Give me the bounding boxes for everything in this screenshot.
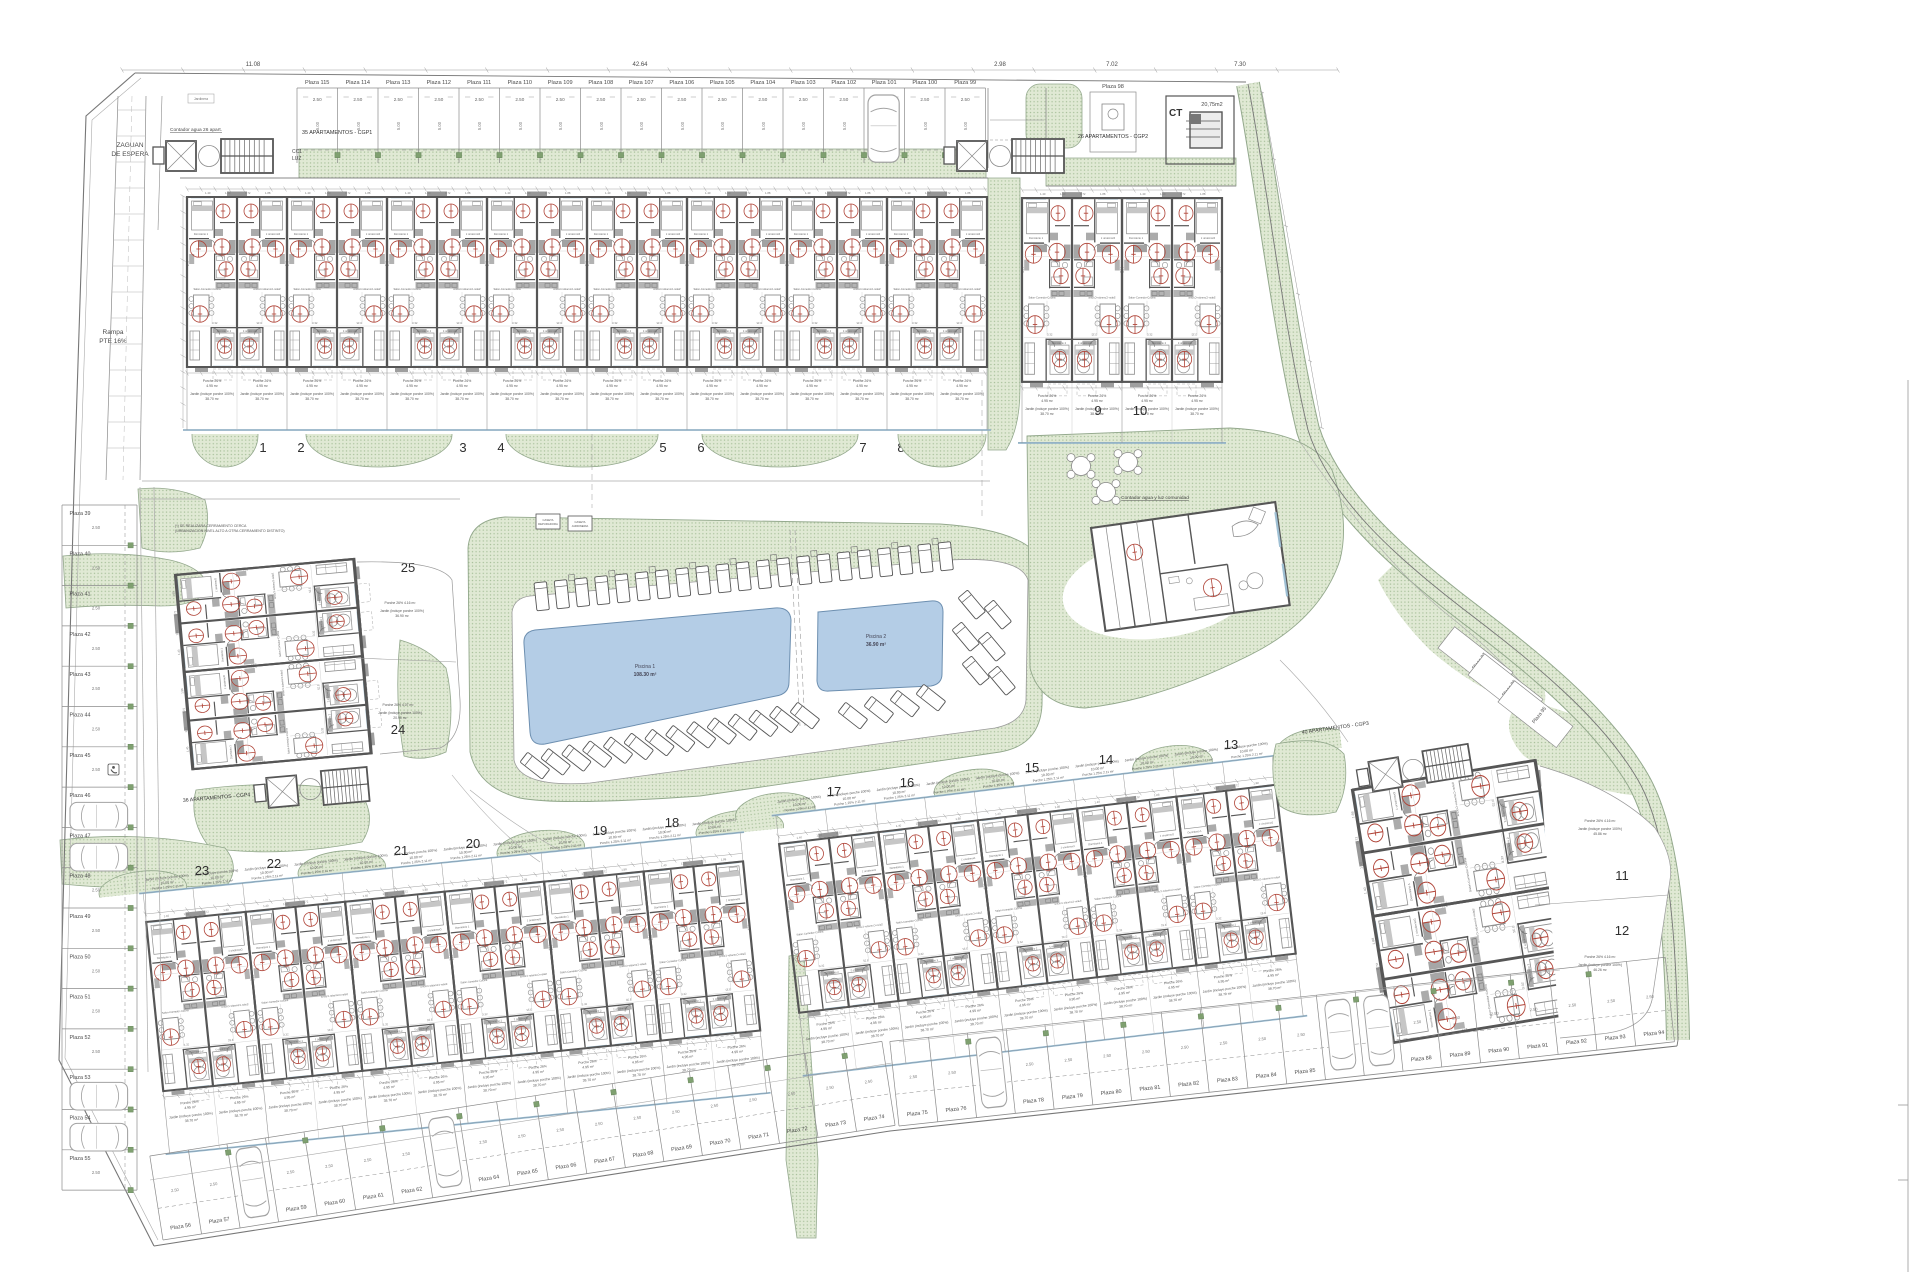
svg-text:2.50: 2.50 xyxy=(596,97,605,102)
svg-text:2.50: 2.50 xyxy=(948,1069,957,1075)
svg-text:Jardin (incluye porche 100%): Jardin (incluye porche 100%) xyxy=(390,392,434,396)
svg-text:1: 1 xyxy=(259,440,266,455)
svg-text:2.50: 2.50 xyxy=(475,97,484,102)
svg-text:2.50: 2.50 xyxy=(718,97,727,102)
svg-text:5.00: 5.00 xyxy=(518,121,523,130)
svg-text:24: 24 xyxy=(391,722,405,737)
svg-text:2.50: 2.50 xyxy=(1646,994,1655,1000)
svg-text:Jardin (incluye porche 100%): Jardin (incluye porche 100%) xyxy=(1578,827,1622,831)
svg-text:Porche 26% 4.16 m²: Porche 26% 4.16 m² xyxy=(385,601,417,605)
svg-text:Jardin (incluye porche 100%): Jardin (incluye porche 100%) xyxy=(378,711,422,715)
svg-text:4.95 m²: 4.95 m² xyxy=(506,384,518,388)
svg-text:2.50: 2.50 xyxy=(1491,1011,1500,1017)
svg-text:Porche 26%: Porche 26% xyxy=(353,379,371,383)
svg-text:2.50: 2.50 xyxy=(1181,1044,1190,1050)
svg-text:(*) SE REALIZARA CERRAMIENTO C: (*) SE REALIZARA CERRAMIENTO CERCA xyxy=(175,524,247,528)
svg-text:5.00: 5.00 xyxy=(842,121,847,130)
svg-text:2.50: 2.50 xyxy=(839,97,848,102)
svg-text:4.95 m²: 4.95 m² xyxy=(806,384,818,388)
svg-text:Contador agua 26 apart.: Contador agua 26 apart. xyxy=(170,127,222,133)
svg-text:38.70 m²: 38.70 m² xyxy=(1190,412,1204,416)
svg-text:5.00: 5.00 xyxy=(680,121,685,130)
svg-text:38.70 m²: 38.70 m² xyxy=(805,397,819,401)
svg-text:16: 16 xyxy=(900,775,914,790)
svg-text:36.90 m²: 36.90 m² xyxy=(395,614,409,618)
svg-text:4.95 m²: 4.95 m² xyxy=(1191,399,1203,403)
svg-text:Jardin (incluye porche 100%): Jardin (incluye porche 100%) xyxy=(440,392,484,396)
svg-text:38.70 m²: 38.70 m² xyxy=(905,397,919,401)
svg-text:38.70 m²: 38.70 m² xyxy=(355,397,369,401)
svg-text:Plaza 107: Plaza 107 xyxy=(629,80,654,86)
svg-text:38.70 m²: 38.70 m² xyxy=(705,397,719,401)
svg-text:Porche 26%: Porche 26% xyxy=(403,379,421,383)
svg-text:5.00: 5.00 xyxy=(396,121,401,130)
svg-text:Jardin (incluye porche 100%): Jardin (incluye porche 100%) xyxy=(240,392,284,396)
svg-text:Plaza 99: Plaza 99 xyxy=(954,80,976,86)
svg-text:2.50: 2.50 xyxy=(92,968,101,973)
svg-text:7.02: 7.02 xyxy=(1106,62,1118,68)
svg-text:2.50: 2.50 xyxy=(92,1049,101,1054)
svg-text:4: 4 xyxy=(497,440,504,455)
svg-text:5.00: 5.00 xyxy=(477,121,482,130)
svg-text:38.70 m²: 38.70 m² xyxy=(405,397,419,401)
svg-text:Jardin (incluye porche 100%): Jardin (incluye porche 100%) xyxy=(690,392,734,396)
svg-text:7.30: 7.30 xyxy=(1234,62,1246,68)
svg-text:2.50: 2.50 xyxy=(920,97,929,102)
svg-text:2.50: 2.50 xyxy=(1103,1053,1112,1059)
svg-text:2.50: 2.50 xyxy=(1219,1040,1228,1046)
svg-text:19: 19 xyxy=(593,823,607,838)
svg-text:20,75m2: 20,75m2 xyxy=(1201,102,1222,108)
svg-text:38.70 m²: 38.70 m² xyxy=(655,397,669,401)
svg-text:2.50: 2.50 xyxy=(637,97,646,102)
svg-text:Porche 26% 4.07 m²: Porche 26% 4.07 m² xyxy=(383,703,415,707)
svg-text:2.50: 2.50 xyxy=(1568,1002,1577,1008)
svg-text:2.50: 2.50 xyxy=(313,97,322,102)
svg-text:Piscina 1: Piscina 1 xyxy=(635,664,656,670)
svg-text:Porche 26% 4.16 m²: Porche 26% 4.16 m² xyxy=(1585,955,1617,959)
svg-text:4.95 m²: 4.95 m² xyxy=(906,384,918,388)
svg-text:JARDINERIA: JARDINERIA xyxy=(572,524,589,528)
svg-text:4.95 m²: 4.95 m² xyxy=(306,384,318,388)
svg-text:Jardin (incluye porche 100%): Jardin (incluye porche 100%) xyxy=(1175,407,1219,411)
svg-text:Plaza 54: Plaza 54 xyxy=(70,1116,91,1122)
svg-text:38.70 m²: 38.70 m² xyxy=(855,397,869,401)
svg-text:4.95 m²: 4.95 m² xyxy=(406,384,418,388)
svg-text:Plaza 39: Plaza 39 xyxy=(70,511,91,517)
svg-text:26 APARTAMENTOS - CGP2: 26 APARTAMENTOS - CGP2 xyxy=(1078,134,1148,140)
svg-text:20.90 m²: 20.90 m² xyxy=(393,716,407,720)
svg-text:Plaza 41: Plaza 41 xyxy=(70,592,91,598)
svg-text:2.50: 2.50 xyxy=(92,767,101,772)
svg-text:Jardin (incluye porche 100%): Jardin (incluye porche 100%) xyxy=(890,392,934,396)
svg-text:7: 7 xyxy=(859,440,866,455)
svg-text:38.70 m²: 38.70 m² xyxy=(255,397,269,401)
svg-text:Plaza 44: Plaza 44 xyxy=(70,713,91,719)
svg-text:2.50: 2.50 xyxy=(394,97,403,102)
svg-text:Porche 26%: Porche 26% xyxy=(453,379,471,383)
svg-text:2.50: 2.50 xyxy=(1025,1061,1034,1067)
svg-text:5.00: 5.00 xyxy=(761,121,766,130)
svg-text:Porche 26%: Porche 26% xyxy=(253,379,271,383)
svg-text:Plaza 55: Plaza 55 xyxy=(70,1156,91,1162)
svg-text:2.50: 2.50 xyxy=(1529,1006,1538,1012)
svg-text:15: 15 xyxy=(1025,760,1039,775)
svg-text:2.98: 2.98 xyxy=(994,62,1006,68)
svg-text:Plaza 103: Plaza 103 xyxy=(791,80,816,86)
svg-text:5.00: 5.00 xyxy=(315,121,320,130)
svg-text:4.95 m²: 4.95 m² xyxy=(756,384,768,388)
svg-text:Plaza 105: Plaza 105 xyxy=(710,80,735,86)
svg-text:5.00: 5.00 xyxy=(437,121,442,130)
svg-text:2.50: 2.50 xyxy=(92,727,101,732)
svg-text:Plaza 46: Plaza 46 xyxy=(70,793,91,799)
svg-text:Plaza 104: Plaza 104 xyxy=(750,80,775,86)
svg-text:108.30 m²: 108.30 m² xyxy=(634,672,657,678)
svg-text:23: 23 xyxy=(195,863,209,878)
svg-text:11.08: 11.08 xyxy=(246,62,261,68)
svg-text:Porche 26%: Porche 26% xyxy=(203,379,221,383)
svg-text:2.50: 2.50 xyxy=(92,525,101,530)
svg-text:42.64: 42.64 xyxy=(632,62,648,68)
svg-text:Plaza 108: Plaza 108 xyxy=(588,80,613,86)
svg-text:4.95 m²: 4.95 m² xyxy=(256,384,268,388)
svg-text:Plaza 100: Plaza 100 xyxy=(912,80,937,86)
svg-text:2.50: 2.50 xyxy=(758,97,767,102)
svg-text:Porche 26%: Porche 26% xyxy=(303,379,321,383)
svg-text:46.26 m²: 46.26 m² xyxy=(1593,968,1607,972)
svg-text:Porche 26%: Porche 26% xyxy=(653,379,671,383)
svg-text:2.50: 2.50 xyxy=(1452,1015,1461,1021)
svg-text:2.50: 2.50 xyxy=(1258,1036,1267,1042)
svg-text:Plaza 101: Plaza 101 xyxy=(872,80,897,86)
svg-text:Jardin (incluye porche 100%): Jardin (incluye porche 100%) xyxy=(590,392,634,396)
svg-text:Porche 26%: Porche 26% xyxy=(1088,394,1106,398)
svg-text:Plaza 43: Plaza 43 xyxy=(70,672,91,678)
svg-text:21: 21 xyxy=(394,843,408,858)
svg-text:38.70 m²: 38.70 m² xyxy=(305,397,319,401)
svg-text:4.95 m²: 4.95 m² xyxy=(656,384,668,388)
svg-text:Plaza 47: Plaza 47 xyxy=(70,833,91,839)
svg-text:2.50: 2.50 xyxy=(92,686,101,691)
svg-text:Jardin (incluye porche 100%): Jardin (incluye porche 100%) xyxy=(940,392,984,396)
svg-text:10: 10 xyxy=(1133,403,1147,418)
svg-text:36.90 m²: 36.90 m² xyxy=(866,642,886,648)
svg-text:Porche 26%: Porche 26% xyxy=(1188,394,1206,398)
svg-text:Plaza 53: Plaza 53 xyxy=(70,1075,91,1081)
svg-text:Porche 26%: Porche 26% xyxy=(503,379,521,383)
svg-text:18: 18 xyxy=(665,815,679,830)
svg-text:Plaza 115: Plaza 115 xyxy=(305,80,329,86)
svg-text:Jardinera: Jardinera xyxy=(194,97,208,101)
svg-text:5.00: 5.00 xyxy=(356,121,361,130)
svg-text:2.50: 2.50 xyxy=(909,1074,918,1080)
svg-text:Jardin (incluye porche 100%): Jardin (incluye porche 100%) xyxy=(290,392,334,396)
svg-text:5.00: 5.00 xyxy=(720,121,725,130)
svg-text:38.70 m²: 38.70 m² xyxy=(605,397,619,401)
svg-text:LUZ: LUZ xyxy=(292,156,301,162)
svg-text:2.50: 2.50 xyxy=(92,565,101,570)
svg-text:Jardin (incluye porche 100%): Jardin (incluye porche 100%) xyxy=(1025,407,1069,411)
svg-text:Jardin (incluye porche 100%): Jardin (incluye porche 100%) xyxy=(640,392,684,396)
svg-text:Porche 26% 4.16 m²: Porche 26% 4.16 m² xyxy=(1585,819,1617,823)
svg-text:Jardin (incluye porche 100%): Jardin (incluye porche 100%) xyxy=(840,392,884,396)
svg-text:Porche 26%: Porche 26% xyxy=(753,379,771,383)
svg-text:Jardin (incluye porche 100%): Jardin (incluye porche 100%) xyxy=(380,609,424,613)
svg-text:Plaza 102: Plaza 102 xyxy=(831,80,856,86)
svg-text:2.50: 2.50 xyxy=(92,606,101,611)
svg-text:Plaza 113: Plaza 113 xyxy=(386,80,410,86)
svg-text:4.95 m²: 4.95 m² xyxy=(206,384,218,388)
svg-text:38.70 m²: 38.70 m² xyxy=(755,397,769,401)
svg-text:5.00: 5.00 xyxy=(639,121,644,130)
svg-text:45.86 m²: 45.86 m² xyxy=(1593,832,1607,836)
svg-text:25: 25 xyxy=(401,560,415,575)
svg-text:2.50: 2.50 xyxy=(92,888,101,893)
svg-text:2.50: 2.50 xyxy=(353,97,362,102)
svg-text:2.50: 2.50 xyxy=(92,1170,101,1175)
svg-text:5.00: 5.00 xyxy=(963,121,968,130)
svg-text:Jardin (incluye porche 100%): Jardin (incluye porche 100%) xyxy=(340,392,384,396)
svg-text:Porche 26%: Porche 26% xyxy=(703,379,721,383)
svg-text:Porche 26%: Porche 26% xyxy=(1138,394,1156,398)
svg-text:9: 9 xyxy=(1094,403,1101,418)
svg-text:38.70 m²: 38.70 m² xyxy=(955,397,969,401)
svg-text:Contador agua y luz comunidad: Contador agua y luz comunidad xyxy=(1121,495,1189,501)
svg-text:2.50: 2.50 xyxy=(1064,1057,1073,1063)
svg-text:Porche 26%: Porche 26% xyxy=(853,379,871,383)
svg-text:38.70 m²: 38.70 m² xyxy=(455,397,469,401)
svg-text:5.00: 5.00 xyxy=(558,121,563,130)
svg-text:2.50: 2.50 xyxy=(556,97,565,102)
svg-text:22: 22 xyxy=(267,856,281,871)
svg-text:4.95 m²: 4.95 m² xyxy=(856,384,868,388)
svg-text:2.50: 2.50 xyxy=(799,97,808,102)
svg-text:5.00: 5.00 xyxy=(923,121,928,130)
svg-text:Jardin (incluye porche 100%): Jardin (incluye porche 100%) xyxy=(790,392,834,396)
svg-text:Porche 26%: Porche 26% xyxy=(953,379,971,383)
svg-text:2.50: 2.50 xyxy=(1607,998,1616,1004)
svg-text:4.95 m²: 4.95 m² xyxy=(356,384,368,388)
svg-text:4.95 m²: 4.95 m² xyxy=(456,384,468,388)
svg-text:38.70 m²: 38.70 m² xyxy=(205,397,219,401)
svg-text:Jardin (incluye porche 100%): Jardin (incluye porche 100%) xyxy=(540,392,584,396)
svg-text:2.50: 2.50 xyxy=(1413,1019,1422,1025)
svg-text:2.50: 2.50 xyxy=(92,646,101,651)
svg-text:38.70 m²: 38.70 m² xyxy=(555,397,569,401)
svg-text:ZAGUAN: ZAGUAN xyxy=(116,142,143,149)
svg-text:5.00: 5.00 xyxy=(599,121,604,130)
svg-text:Jardin (incluye porche 100%): Jardin (incluye porche 100%) xyxy=(490,392,534,396)
svg-text:CT: CT xyxy=(1169,108,1182,119)
svg-text:38.70 m²: 38.70 m² xyxy=(505,397,519,401)
svg-text:Plaza 49: Plaza 49 xyxy=(70,914,91,920)
svg-text:Plaza 45: Plaza 45 xyxy=(70,753,91,759)
svg-text:2.50: 2.50 xyxy=(92,928,101,933)
svg-text:Porche 26%: Porche 26% xyxy=(903,379,921,383)
svg-text:(URBANIZACION NIVEL ALTO A OTR: (URBANIZACION NIVEL ALTO A OTRA CERRAMIE… xyxy=(175,529,285,533)
svg-text:4.95 m²: 4.95 m² xyxy=(606,384,618,388)
svg-text:Porche 26%: Porche 26% xyxy=(603,379,621,383)
svg-text:2.50: 2.50 xyxy=(92,1009,101,1014)
svg-text:CC1: CC1 xyxy=(292,149,302,155)
svg-text:35 APARTAMENTOS - CGP1: 35 APARTAMENTOS - CGP1 xyxy=(302,130,372,136)
svg-text:Jardin (incluye porche 100%): Jardin (incluye porche 100%) xyxy=(190,392,234,396)
svg-text:4.95 m²: 4.95 m² xyxy=(706,384,718,388)
svg-text:Plaza 51: Plaza 51 xyxy=(70,995,91,1001)
svg-text:5: 5 xyxy=(659,440,666,455)
svg-text:Porche 26%: Porche 26% xyxy=(803,379,821,383)
svg-text:Plaza 42: Plaza 42 xyxy=(70,632,91,638)
svg-text:5.00: 5.00 xyxy=(801,121,806,130)
svg-text:Plaza 40: Plaza 40 xyxy=(70,551,91,557)
svg-text:Plaza 52: Plaza 52 xyxy=(70,1035,91,1041)
svg-text:Plaza 98: Plaza 98 xyxy=(1102,84,1124,90)
svg-text:4.95 m²: 4.95 m² xyxy=(556,384,568,388)
svg-text:4.95 m²: 4.95 m² xyxy=(1041,399,1053,403)
svg-text:4.95 m²: 4.95 m² xyxy=(956,384,968,388)
svg-text:Piscina 2: Piscina 2 xyxy=(866,634,887,640)
svg-text:Plaza 110: Plaza 110 xyxy=(508,80,532,86)
svg-text:Porche 26%: Porche 26% xyxy=(553,379,571,383)
svg-text:2.50: 2.50 xyxy=(1142,1048,1151,1054)
svg-text:17: 17 xyxy=(827,784,841,799)
svg-text:14: 14 xyxy=(1099,752,1113,767)
svg-text:13: 13 xyxy=(1224,737,1238,752)
svg-text:Porche 26%: Porche 26% xyxy=(1038,394,1056,398)
svg-text:2.50: 2.50 xyxy=(515,97,524,102)
svg-text:2.50: 2.50 xyxy=(677,97,686,102)
svg-text:Jardin (incluye porche 100%): Jardin (incluye porche 100%) xyxy=(740,392,784,396)
svg-text:2.50: 2.50 xyxy=(1297,1032,1306,1038)
svg-text:Plaza 106: Plaza 106 xyxy=(669,80,694,86)
svg-text:Plaza 112: Plaza 112 xyxy=(427,80,451,86)
svg-text:Rampa: Rampa xyxy=(103,329,124,336)
svg-text:38.70 m²: 38.70 m² xyxy=(1040,412,1054,416)
svg-text:Plaza 50: Plaza 50 xyxy=(70,954,91,960)
svg-text:2.50: 2.50 xyxy=(434,97,443,102)
svg-text:Plaza 48: Plaza 48 xyxy=(70,874,91,880)
svg-text:Plaza 109: Plaza 109 xyxy=(548,80,573,86)
svg-text:Plaza 114: Plaza 114 xyxy=(346,80,370,86)
svg-text:Jardin (incluye porche 100%): Jardin (incluye porche 100%) xyxy=(1578,963,1622,967)
svg-text:2: 2 xyxy=(297,440,304,455)
svg-text:20: 20 xyxy=(466,836,480,851)
svg-text:12: 12 xyxy=(1615,923,1629,938)
svg-text:DEPURADORA: DEPURADORA xyxy=(538,522,558,526)
svg-text:11: 11 xyxy=(1615,868,1629,883)
svg-text:Plaza 111: Plaza 111 xyxy=(467,80,491,86)
svg-text:2.50: 2.50 xyxy=(961,97,970,102)
svg-text:3: 3 xyxy=(459,440,466,455)
